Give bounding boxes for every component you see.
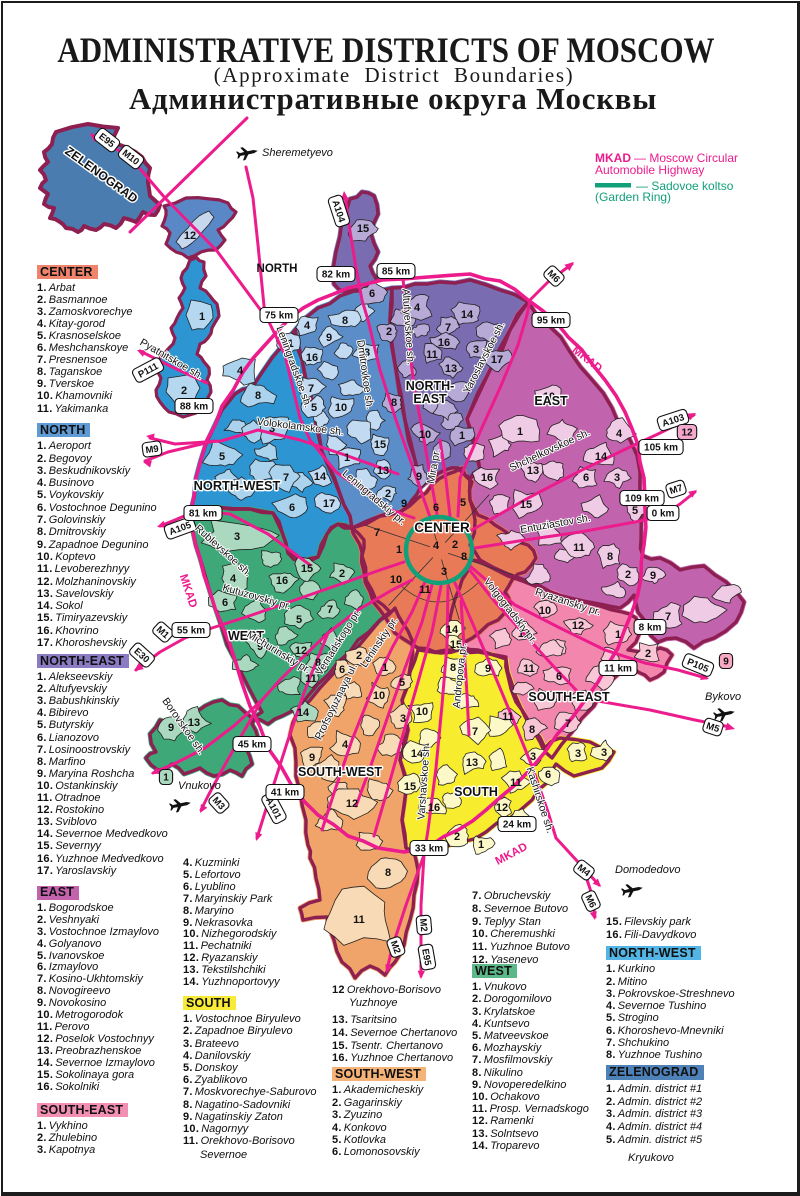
svg-text:11: 11 [426,349,438,361]
svg-text:8: 8 [461,551,467,563]
svg-text:10: 10 [416,706,428,718]
svg-text:SOUTH-EAST: SOUTH-EAST [528,690,610,704]
svg-text:4: 4 [414,302,421,314]
svg-text:7: 7 [374,527,380,539]
svg-text:1: 1 [517,426,523,438]
svg-text:8 km: 8 km [639,623,662,634]
svg-text:0 km: 0 km [652,509,675,520]
svg-text:EAST: EAST [413,392,447,406]
svg-text:3: 3 [575,748,581,760]
svg-text:13: 13 [466,757,478,769]
svg-text:10: 10 [335,402,347,414]
svg-text:4: 4 [237,365,244,377]
svg-text:24 km: 24 km [503,820,531,831]
svg-text:3: 3 [473,344,479,356]
svg-text:33 km: 33 km [415,844,443,855]
svg-text:12: 12 [184,230,196,242]
svg-text:14: 14 [314,471,327,483]
svg-text:95 km: 95 km [537,316,565,327]
svg-text:2: 2 [452,539,458,551]
svg-text:SOUTH-WEST: SOUTH-WEST [298,765,382,779]
svg-text:11: 11 [573,542,585,554]
svg-text:2: 2 [625,569,631,581]
svg-text:NORTH-: NORTH- [406,379,455,393]
svg-text:9: 9 [309,752,315,764]
svg-text:16: 16 [428,802,440,814]
svg-text:16: 16 [276,575,288,587]
svg-text:Automobile Highway: Automobile Highway [595,163,704,177]
svg-text:12: 12 [572,620,584,632]
svg-text:8: 8 [342,315,348,327]
svg-text:13: 13 [527,465,539,477]
svg-text:2: 2 [386,326,392,338]
svg-text:12: 12 [681,428,693,439]
svg-text:11: 11 [419,584,431,596]
svg-text:3: 3 [530,751,536,763]
svg-text:7: 7 [283,472,289,484]
svg-text:4: 4 [433,540,440,552]
svg-text:15: 15 [357,223,369,235]
svg-text:9: 9 [650,570,656,582]
svg-text:1: 1 [615,629,621,641]
svg-text:15: 15 [301,563,313,575]
svg-text:10: 10 [390,574,402,586]
svg-text:6: 6 [433,502,439,514]
svg-text:3: 3 [441,566,447,578]
svg-text:11: 11 [353,914,365,926]
svg-text:11: 11 [502,711,514,723]
svg-text:8: 8 [607,551,613,563]
svg-text:6: 6 [289,502,295,514]
svg-text:13: 13 [445,363,457,375]
svg-text:14: 14 [461,309,474,321]
svg-text:2: 2 [645,648,651,660]
svg-text:5: 5 [399,677,405,689]
svg-text:12: 12 [346,798,358,810]
svg-text:75 km: 75 km [265,311,293,322]
svg-text:Domodedovo: Domodedovo [615,864,680,876]
svg-text:15: 15 [404,781,416,793]
svg-text:17: 17 [323,498,335,510]
svg-text:SOUTH: SOUTH [454,785,498,799]
svg-text:1: 1 [396,544,402,556]
svg-text:7: 7 [445,322,451,334]
svg-text:4: 4 [616,428,623,440]
svg-text:M2: M2 [417,918,429,932]
svg-text:CENTER: CENTER [414,520,470,535]
svg-text:105 km: 105 km [644,443,678,454]
svg-text:7: 7 [565,718,571,730]
svg-text:5: 5 [460,497,466,509]
svg-text:14: 14 [595,451,608,463]
svg-text:6: 6 [545,769,551,781]
svg-text:NORTH-WEST: NORTH-WEST [194,478,281,493]
svg-text:3: 3 [614,472,620,484]
svg-text:8: 8 [529,724,535,736]
svg-text:7: 7 [472,726,478,738]
svg-text:8: 8 [385,867,391,879]
svg-text:1: 1 [199,311,205,323]
svg-text:10: 10 [539,605,551,617]
svg-text:14: 14 [446,624,459,636]
svg-text:3: 3 [234,531,240,543]
svg-text:45 km: 45 km [238,740,266,751]
svg-text:2: 2 [385,488,391,500]
svg-text:2: 2 [339,568,345,580]
svg-text:9: 9 [401,498,407,510]
svg-text:5: 5 [632,505,638,517]
svg-text:1: 1 [459,430,465,442]
svg-text:7: 7 [327,604,333,616]
svg-text:10: 10 [373,690,385,702]
svg-text:82 km: 82 km [322,270,350,281]
svg-text:1: 1 [344,452,350,464]
svg-text:9: 9 [416,471,422,483]
svg-text:Bykovo: Bykovo [705,691,741,703]
svg-text:41 km: 41 km [271,788,299,799]
svg-text:3: 3 [601,747,607,759]
svg-text:9: 9 [723,657,729,668]
svg-text:(Garden Ring): (Garden Ring) [595,190,671,204]
svg-text:3: 3 [400,713,406,725]
svg-text:16: 16 [481,472,493,484]
svg-text:10: 10 [419,429,431,441]
svg-text:4: 4 [304,320,311,332]
svg-text:5: 5 [296,614,302,626]
svg-text:EAST: EAST [534,394,568,408]
svg-text:6: 6 [556,671,562,683]
svg-text:15: 15 [374,439,386,451]
svg-text:MKAD: MKAD [494,841,530,868]
svg-text:16: 16 [438,337,450,349]
svg-text:5: 5 [219,451,225,463]
svg-text:109 km: 109 km [625,494,659,505]
svg-text:16: 16 [306,352,318,364]
svg-text:6: 6 [583,472,589,484]
svg-text:Sheremetyevo: Sheremetyevo [262,147,333,159]
svg-text:14: 14 [297,707,310,719]
svg-text:8: 8 [255,390,261,402]
svg-text:12: 12 [496,802,508,814]
svg-text:11: 11 [510,777,522,789]
svg-text:13: 13 [377,465,389,477]
svg-text:81 km: 81 km [189,509,217,520]
svg-text:NORTH: NORTH [257,263,298,275]
svg-text:6: 6 [369,288,375,300]
svg-text:9: 9 [485,663,491,675]
svg-text:11: 11 [523,663,535,675]
svg-text:4: 4 [342,739,349,751]
svg-text:11 km: 11 km [604,664,632,675]
svg-text:9: 9 [326,332,332,344]
svg-text:7: 7 [665,611,671,623]
svg-text:6: 6 [222,597,228,609]
svg-text:1: 1 [478,839,484,851]
svg-text:1: 1 [382,662,388,674]
svg-text:2: 2 [454,831,460,843]
svg-text:85 km: 85 km [382,267,410,278]
svg-text:15: 15 [520,499,532,511]
svg-text:8: 8 [391,397,397,409]
svg-text:17: 17 [491,354,503,366]
